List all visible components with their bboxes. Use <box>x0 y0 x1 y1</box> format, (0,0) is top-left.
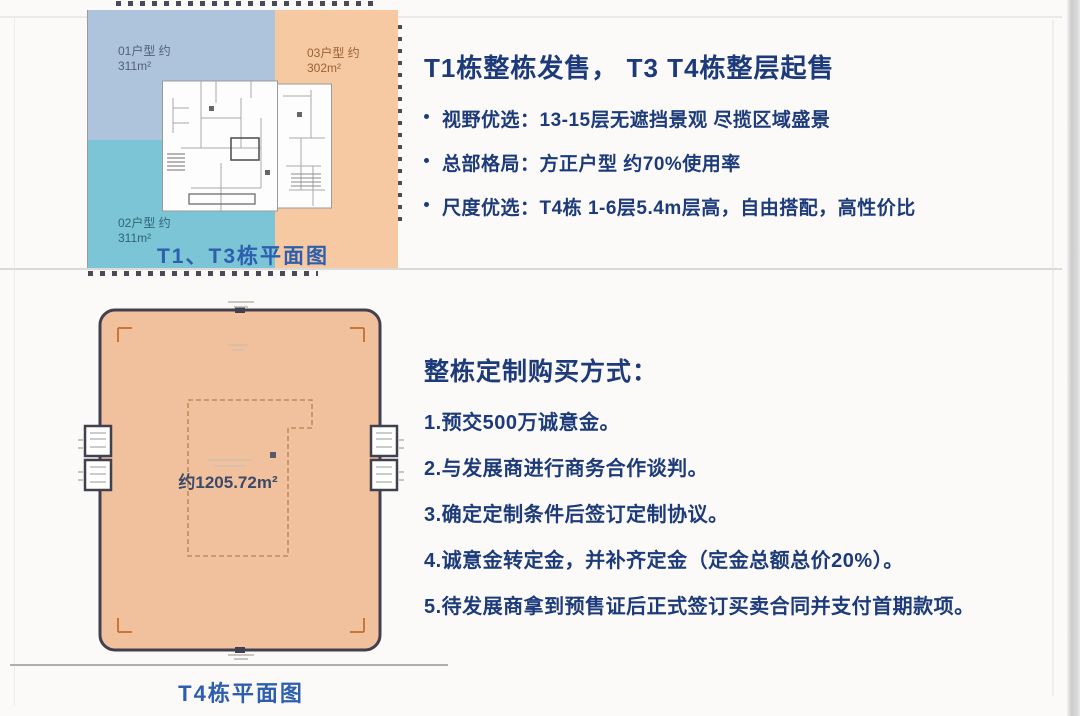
dimension-ticks-right <box>398 25 402 221</box>
unit-01-label: 01户型 约311m² <box>118 44 171 74</box>
purchase-step: 4.诚意金转定金，并补齐定金（定金总额总价20%）。 <box>424 544 1074 573</box>
t4-caption-rule <box>10 664 448 666</box>
unit-floorplan-drawing <box>161 78 333 214</box>
bullet-dot-icon <box>424 114 429 119</box>
bullet-item: 尺度优选：T4栋 1-6层5.4m层高，自由搭配，高性价比 <box>424 193 1064 220</box>
sales-bullet-list: 视野优选：13-15层无遮挡景观 尽揽区域盛景 总部格局：方正户型 约70%使用… <box>424 105 1064 220</box>
bullet-text: 视野优选：13-15层无遮挡景观 尽揽区域盛景 <box>442 105 830 132</box>
t4-caption: T4栋平面图 <box>98 676 384 708</box>
purchase-step: 2.与发展商进行商务合作谈判。 <box>424 452 1074 481</box>
bullet-dot-icon <box>424 202 429 207</box>
purchase-step: 1.预交500万诚意金。 <box>424 406 1074 435</box>
unit-01-name: 01户型 约 <box>118 44 171 58</box>
t4-floorplan-drawing: 约1205.72m² <box>78 300 404 660</box>
t4-area-label: 约1205.72m² <box>178 472 278 492</box>
unit-03-name: 03户型 约 <box>307 46 360 60</box>
unit-02-name: 02户型 约 <box>118 216 171 230</box>
purchase-step-list: 1.预交500万诚意金。 2.与发展商进行商务合作谈判。 3.确定定制条件后签订… <box>424 406 1074 619</box>
unit-03-label: 03户型 约302m² <box>307 46 360 76</box>
bullet-text: 尺度优选：T4栋 1-6层5.4m层高，自由搭配，高性价比 <box>442 193 916 220</box>
unit-03-area: 302m² <box>307 61 341 75</box>
left-edge-line <box>14 18 15 706</box>
purchase-step: 5.待发展商拿到预售证后正式签订买卖合同并支付首期款项。 <box>424 590 1074 619</box>
bullet-item: 总部格局：方正户型 约70%使用率 <box>424 149 1064 176</box>
bullet-dot-icon <box>424 158 429 163</box>
t1-t3-caption: T1、T3栋平面图 <box>88 240 398 270</box>
sales-info: T1栋整栋发售， T3 T4栋整层起售 视野优选：13-15层无遮挡景观 尽揽区… <box>424 48 1064 237</box>
bullet-item: 视野优选：13-15层无遮挡景观 尽揽区域盛景 <box>424 105 1064 132</box>
sales-title: T1栋整栋发售， T3 T4栋整层起售 <box>424 48 1064 85</box>
purchase-info: 整栋定制购买方式： 1.预交500万诚意金。 2.与发展商进行商务合作谈判。 3… <box>424 352 1074 636</box>
bullet-text: 总部格局：方正户型 约70%使用率 <box>442 149 741 176</box>
unit-01-area: 311m² <box>118 59 151 73</box>
purchase-step: 3.确定定制条件后签订定制协议。 <box>424 498 1074 527</box>
dimension-ticks-top <box>116 1 378 6</box>
slide: 01户型 约311m² 02户型 约311m² 03户型 约302m² T1、T… <box>0 0 1080 716</box>
dimension-ticks-bottom <box>88 271 318 276</box>
t1-t3-floorplan: 01户型 约311m² 02户型 约311m² 03户型 约302m² T1、T… <box>88 10 398 268</box>
purchase-title: 整栋定制购买方式： <box>424 352 1074 388</box>
